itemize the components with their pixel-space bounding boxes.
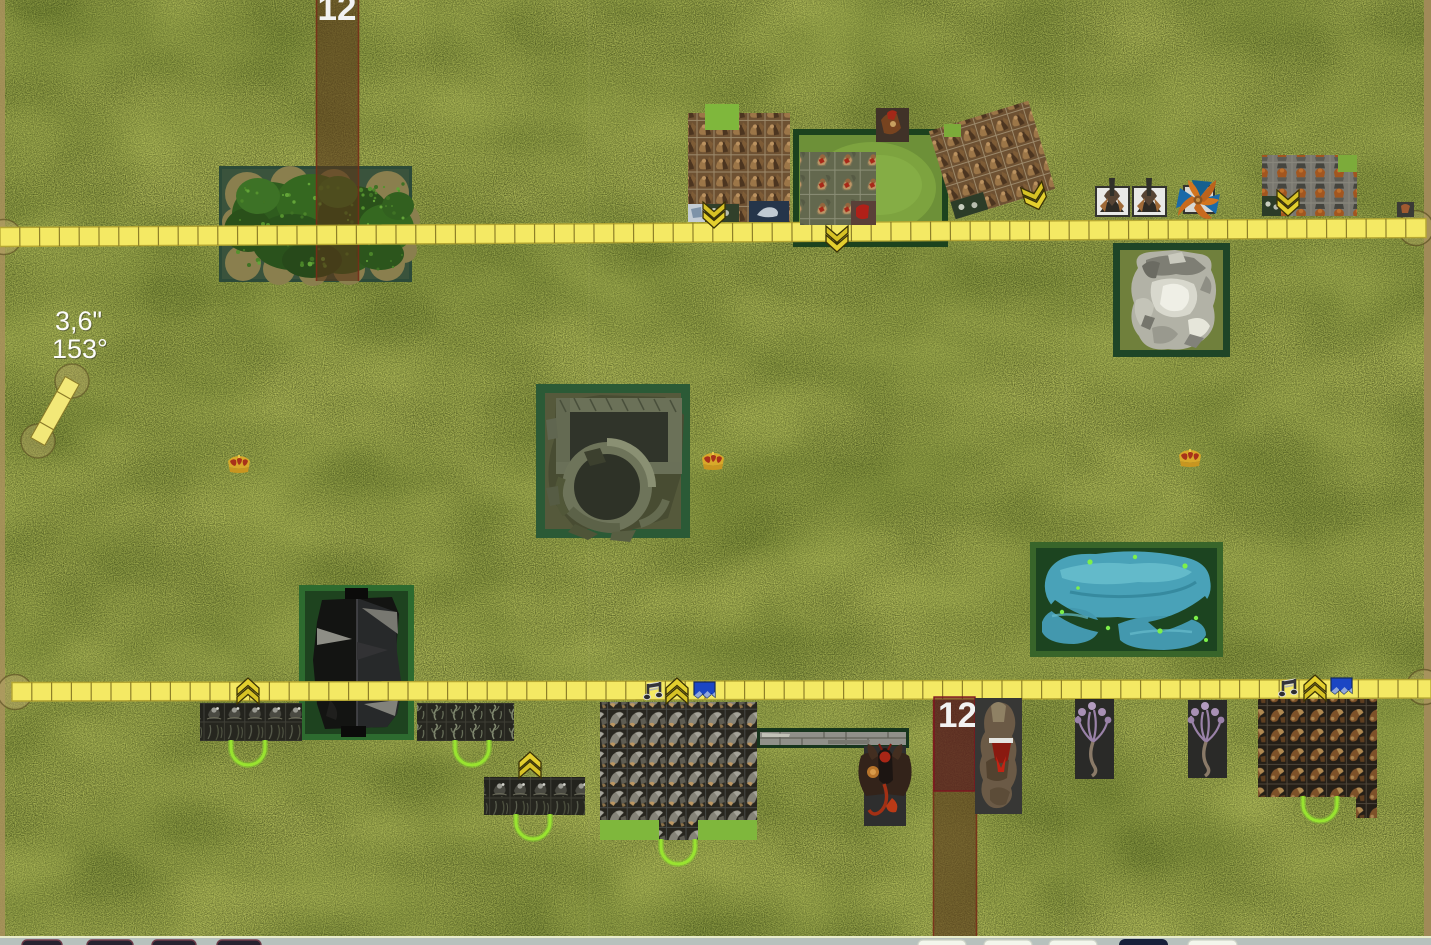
- svg-text:3,6": 3,6": [55, 306, 102, 336]
- svg-text:153°: 153°: [52, 334, 108, 364]
- svg-text:12: 12: [938, 696, 977, 735]
- svg-text:12: 12: [318, 0, 357, 28]
